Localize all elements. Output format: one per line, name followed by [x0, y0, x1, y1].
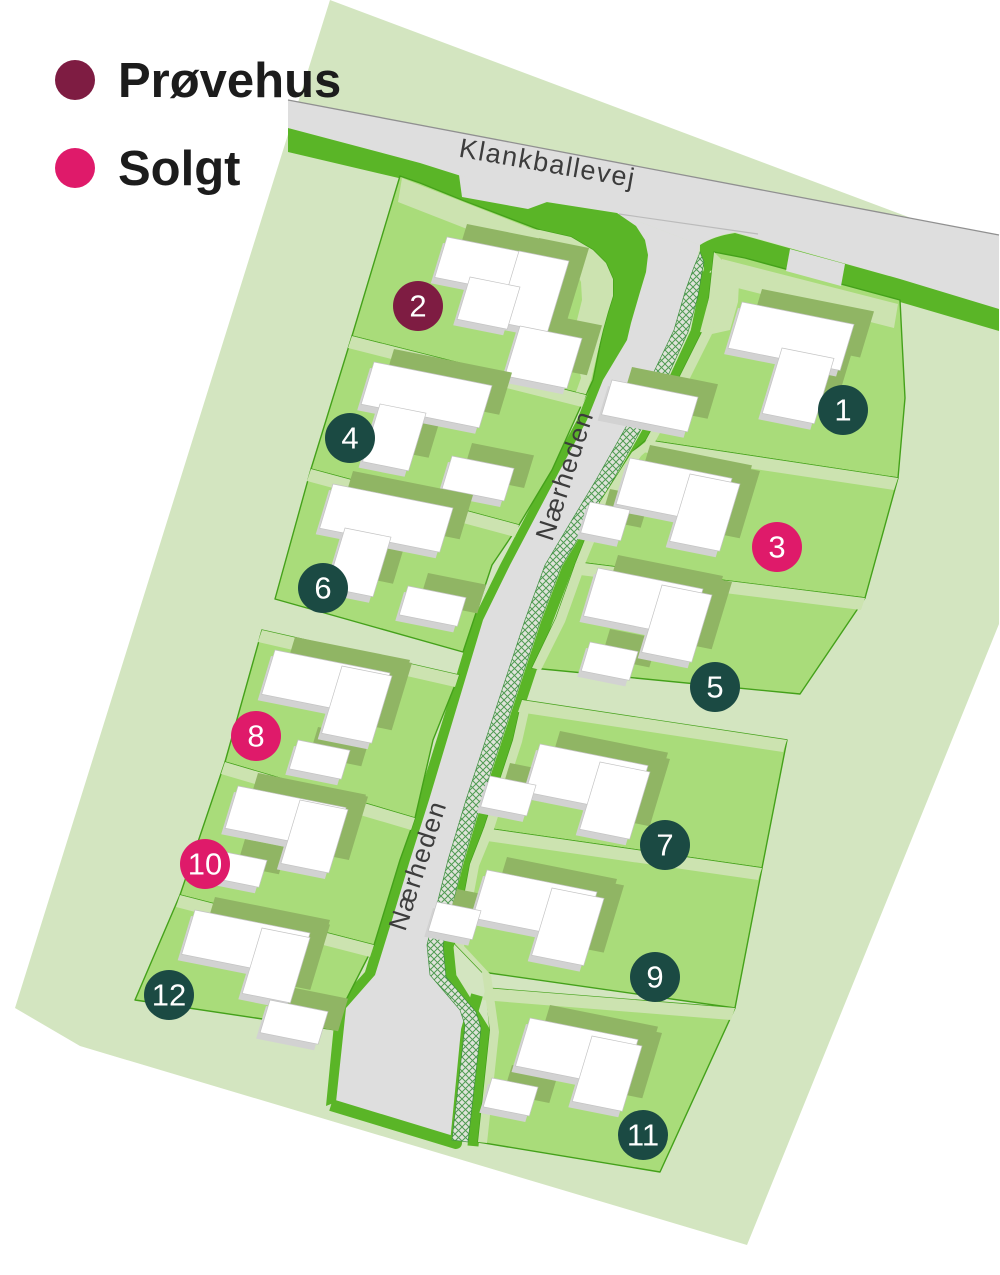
svg-text:6: 6 [314, 571, 331, 606]
svg-text:9: 9 [646, 960, 663, 995]
svg-text:1: 1 [834, 393, 851, 428]
svg-text:3: 3 [768, 530, 785, 565]
svg-text:Solgt: Solgt [118, 142, 240, 196]
svg-text:5: 5 [706, 670, 723, 705]
svg-text:12: 12 [152, 978, 186, 1013]
svg-text:Prøvehus: Prøvehus [118, 54, 341, 108]
svg-text:4: 4 [341, 421, 358, 456]
svg-text:10: 10 [188, 847, 222, 882]
svg-text:7: 7 [656, 828, 673, 863]
svg-text:8: 8 [247, 719, 264, 754]
svg-text:2: 2 [409, 289, 426, 324]
svg-text:11: 11 [627, 1118, 659, 1153]
